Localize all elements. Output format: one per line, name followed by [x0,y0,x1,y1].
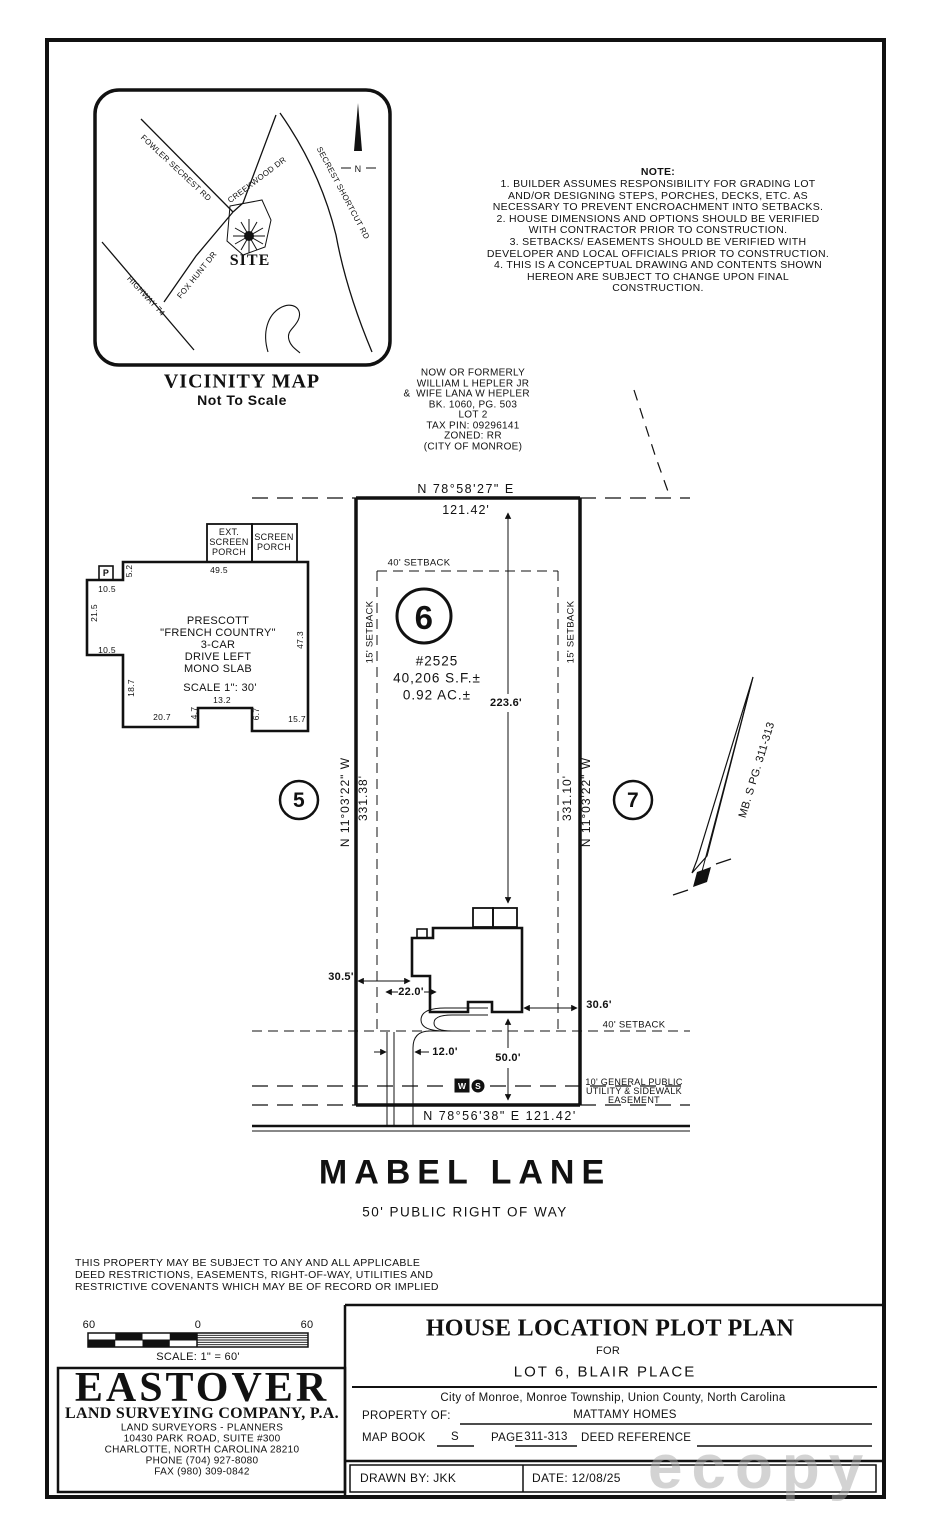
house-name-line: MONO SLAB [184,663,252,675]
house-dim-18-7: 18.7 [126,679,136,697]
setback-right-label: 15' SETBACK [566,601,577,664]
surveyor-company: LAND SURVEYING COMPANY, P.A. [65,1405,339,1423]
adjoiner-line: (CITY OF MONROE) [424,442,523,453]
setback-left-label: 15' SETBACK [365,601,376,664]
house-name-line: 3-CAR [201,639,236,651]
surveyor-line: PHONE (704) 927-8080 [146,1456,259,1467]
house-dim-49-5: 49.5 [210,565,228,575]
house-name-line: DRIVE LEFT [185,651,252,663]
right-of-way-label: 50' PUBLIC RIGHT OF WAY [362,1205,568,1220]
bearing-left: N 11°03'22" W [338,757,352,847]
water-meter-label: W [458,1081,466,1091]
property-of-label: PROPERTY OF: [362,1410,451,1422]
page-value: 311-313 [524,1431,567,1443]
lot-number: 6 [415,599,434,637]
bearing-top: N 78°58'27" E [417,482,514,496]
bearing-right: N 11°03'22" W [579,757,593,847]
scalebar-mid-value: 0 [195,1319,201,1331]
vicinity-map-frame [95,90,390,365]
vicinity-north-label: N [355,164,362,174]
scalebar-left-value: 60 [83,1319,96,1331]
dim-depth: 223.6' [490,697,522,709]
porch-left-label: EXT. [219,527,239,537]
surveyor-line: LAND SURVEYORS - PLANNERS [121,1423,283,1434]
setback-front-top-label: 40' SETBACK [388,558,451,569]
distance-right: 331.10' [560,775,574,821]
surveyor-line: CHARLOTTE, NORTH CAROLINA 28210 [105,1445,300,1456]
title-block-for: FOR [596,1345,620,1357]
scale-bar [88,1333,308,1347]
adjacent-lot-5: 5 [293,789,305,813]
note-line: 3. SETBACKS/ EASEMENTS SHOULD BE VERIFIE… [510,236,807,248]
disclaimer-line: THIS PROPERTY MAY BE SUBJECT TO ANY AND … [75,1257,420,1269]
surveyor-line: 10430 PARK ROAD, SUITE #300 [124,1434,281,1445]
house-dim-21-5: 21.5 [89,604,99,622]
map-book-label: MAP BOOK [362,1432,426,1444]
adjoiner-ampersand: & [404,389,411,400]
scalebar-label: SCALE: 1" = 60' [156,1351,240,1363]
vicinity-map-title: VICINITY MAP [164,371,320,394]
lot-area-ac: 0.92 AC.± [403,688,471,703]
dim-house-right: 30.6' [586,999,612,1011]
house-dim-15-7: 15.7 [288,714,306,724]
map-book-north-needle-icon [673,677,753,895]
note-heading: NOTE: [641,166,675,178]
property-of-value: MATTAMY HOMES [573,1409,677,1421]
date: DATE: 12/08/25 [532,1471,621,1485]
adjoiner-line [634,390,670,497]
title-block-lot: LOT 6, BLAIR PLACE [514,1364,696,1381]
house-name-line: PRESCOTT [187,615,249,627]
distance-left: 331.38' [356,775,370,821]
vicinity-roads-lines [102,113,372,353]
adjoiner-line: LOT 2 [458,410,487,421]
house-dim-20-7: 20.7 [153,712,171,722]
porch-left-label: SCREEN [209,537,248,547]
page-label: PAGE [491,1432,523,1444]
surveyor-line: FAX (980) 309-0842 [154,1467,249,1478]
porch-left-label: PORCH [212,547,246,557]
drawing-linework [0,0,932,1536]
plot-plan-sheet: FOWLER SECREST RD CREEKWOOD DR SECREST S… [0,0,932,1536]
house-dim-4-7: 4.7 [189,707,199,720]
vicinity-map-subtitle: Not To Scale [197,392,287,408]
street-name: MABEL LANE [319,1154,611,1193]
scan-watermark: ecopy [648,1432,872,1503]
setback-front-bottom-label: 40' SETBACK [603,1020,666,1031]
site-starburst [233,219,265,253]
note-line: 4. THIS IS A CONCEPTUAL DRAWING AND CONT… [494,259,822,271]
scalebar-right-value: 60 [301,1319,314,1331]
dim-house-left: 30.5' [328,971,354,983]
lot-area-sf: 40,206 S.F.± [393,671,481,686]
note-line: WITH CONTRACTOR PRIOR TO CONSTRUCTION. [529,224,788,236]
house-dim-10-5: 10.5 [98,584,116,594]
house-dim-10-5b: 10.5 [98,645,116,655]
title-block-title: HOUSE LOCATION PLOT PLAN [426,1316,794,1343]
bearing-bottom: N 78°56'38" E 121.42' [423,1109,576,1123]
disclaimer-line: DEED RESTRICTIONS, EASEMENTS, RIGHT-OF-W… [75,1269,433,1281]
adjoiner-line: WIFE LANA W HEPLER [416,389,530,400]
note-line: NECESSARY TO PREVENT ENCROACHMENT INTO S… [493,201,823,213]
dim-garage: 22.0' [398,986,424,998]
house-dim-13-2: 13.2 [213,695,231,705]
dim-drive: 12.0' [432,1046,458,1058]
adjoiner-line: NOW OR FORMERLY [421,368,525,379]
adjacent-lot-7: 7 [627,789,639,813]
house-dim-47-3: 47.3 [295,631,305,649]
porch-right-label: PORCH [257,542,291,552]
house-on-plot [412,908,522,1012]
easement-label-line: EASEMENT [608,1095,660,1105]
house-dim-5-2: 5.2 [124,565,134,578]
distance-top: 121.42' [442,503,490,517]
drawn-by: DRAWN BY: JKK [360,1471,456,1485]
dim-front: 50.0' [495,1052,521,1064]
house-dim-6-7: 6.7 [251,708,261,721]
sewer-label: S [475,1081,481,1091]
p-label: P [103,568,109,578]
map-book-value: S [451,1431,459,1443]
lot-address: #2525 [416,654,459,669]
note-line: CONSTRUCTION. [612,282,703,294]
porch-right-label: SCREEN [254,532,293,542]
site-label: SITE [230,252,270,270]
vicinity-north-arrow-icon [341,103,376,168]
house-name-line: "FRENCH COUNTRY" [160,627,276,639]
note-line: 1. BUILDER ASSUMES RESPONSIBILITY FOR GR… [501,178,816,190]
title-block-location: City of Monroe, Monroe Township, Union C… [440,1392,785,1404]
house-scale-label: SCALE 1": 30' [183,682,257,694]
adjoiner-line: ZONED: RR [444,431,502,442]
disclaimer-line: RESTRICTIVE COVENANTS WHICH MAY BE OF RE… [75,1281,439,1293]
